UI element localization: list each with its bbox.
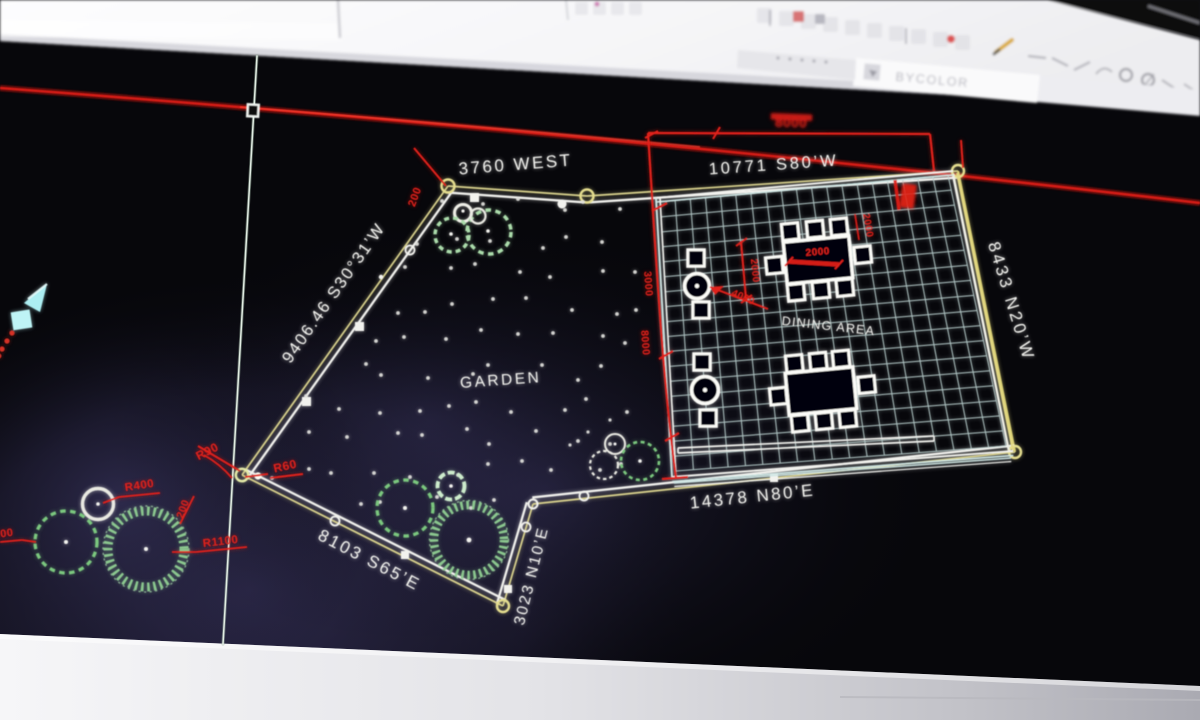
svg-text:8000: 8000 bbox=[638, 330, 652, 356]
svg-text:3000: 3000 bbox=[641, 271, 655, 297]
svg-text:2000: 2000 bbox=[805, 246, 830, 259]
